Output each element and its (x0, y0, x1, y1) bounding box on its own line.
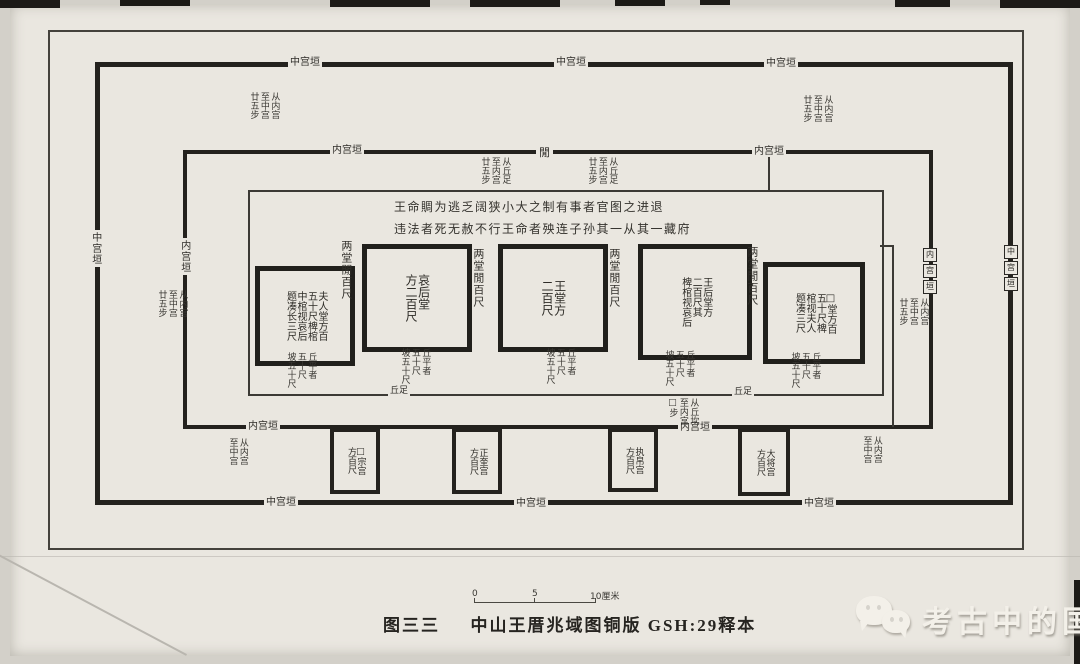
hall-inscription: 夫人堂方百五十尺椑棺中棺视哀后题凑长三尺 (284, 291, 326, 341)
hall-peitang: □堂方百五十尺椑棺视夫人题凑三尺 (763, 262, 865, 364)
palace-inscription: 大将宫方百尺 (755, 449, 774, 476)
inner-wall-label-vertical: 内宫垣 (178, 238, 189, 275)
annotation-between-walls: 从内宫至中宫廿五步 (155, 290, 244, 317)
annotation-mound-flat: 丘平者五十尺坡五十尺 (398, 348, 496, 384)
palace-zong: □宗宫方百尺 (330, 428, 380, 494)
middle-wall-label-vertical: 中宫垣 (89, 230, 100, 267)
edict-line-2: 违法者死无赦不行王命者殃连子孙其一从其一藏府 (394, 218, 691, 240)
scale-tick (595, 598, 596, 603)
annotation-corner: 从内宫至中宫 (226, 438, 286, 465)
wechat-icon (856, 596, 912, 642)
palace-dajiang: 大将宫方百尺 (738, 428, 790, 496)
palace-inscription: □宗宫方百尺 (346, 447, 365, 475)
inner-wall-top (183, 150, 933, 154)
annotation-below-mound: 从丘坎至内宫□步 (666, 398, 746, 425)
inner-wall-label: 内宫垣 (330, 145, 364, 156)
hall-inscription: 哀后堂方二百尺 (404, 274, 429, 322)
mound-step-segment (768, 152, 770, 190)
mound-foot-label: 丘足 (732, 387, 754, 398)
middle-wall-label: 中宫垣 (554, 57, 588, 68)
royal-edict: 王命賙为逃乏阔狭小大之制有事者官图之进退 违法者死无赦不行王命者殃连子孙其一从其… (394, 196, 691, 240)
inner-wall-boxed-label: 内 宫 垣 (923, 248, 937, 294)
annotation-between-walls: 从内宫至中宫廿五步 (896, 298, 985, 325)
annotation-inner-zone: 从丘足至内宫廿五步 (585, 157, 674, 184)
annotation-mound-flat: 丘平者五十尺坡五十尺 (662, 350, 760, 386)
scale-tick (474, 598, 475, 603)
middle-wall-boxed-label: 中 宫 垣 (1004, 245, 1018, 291)
annotation-between-walls: 从内宫至中宫廿五步 (247, 92, 336, 119)
annotation-mound-flat: 丘平者五十尺坡五十尺 (284, 352, 382, 388)
boxed-char: 内 (923, 248, 937, 262)
scan-smudge (895, 0, 950, 7)
annotation-inner-zone: 从丘足至内宫廿五步 (478, 157, 567, 184)
figure-caption: 图三三 中山王厝兆域图铜版 GSH:29释本 (383, 611, 756, 636)
annotation-corner: 从内宫至中宫 (860, 436, 920, 463)
scale-line (474, 602, 596, 603)
inner-wall-label: 内宫垣 (752, 146, 786, 157)
middle-wall-label: 中宫垣 (514, 498, 548, 509)
boxed-char: 宫 (1004, 261, 1018, 275)
hall-wang: 王堂方二百尺 (498, 244, 608, 352)
hall-inscription: 王后堂方二百尺其椑棺视哀后 (679, 277, 711, 327)
middle-wall-left (95, 62, 100, 505)
hall-gap-label: 两堂閒百尺 (608, 248, 620, 348)
scale-bar: 0 5 10厘米 (472, 589, 632, 607)
middle-wall-label: 中宫垣 (802, 498, 836, 509)
chat-bubble-small (882, 610, 910, 633)
mound-foot-label: 丘足 (388, 386, 410, 397)
hall-inscription: 王堂方二百尺 (540, 280, 565, 316)
middle-wall-label: 中宫垣 (288, 57, 322, 68)
scan-smudge (1000, 0, 1080, 8)
figure-number: 图三三 (383, 616, 440, 635)
scan-smudge (0, 0, 60, 8)
palace-zhibo: 执帛宫方百尺 (608, 428, 658, 492)
scan-smudge (330, 0, 430, 7)
scan-smudge (700, 0, 730, 5)
annotation-mound-flat: 丘平者五十尺坡五十尺 (788, 352, 886, 388)
boxed-char: 垣 (1004, 277, 1018, 291)
scan-smudge (470, 0, 560, 7)
boxed-char: 宫 (923, 264, 937, 278)
scanned-page: { "caption": { "fig_no": "图三三", "title":… (0, 0, 1080, 664)
middle-wall-label: 中宫垣 (264, 497, 298, 508)
annotation-mound-flat: 丘平者五十尺坡五十尺 (543, 348, 641, 384)
palace-inscription: 正奎宫方百尺 (468, 448, 487, 475)
hall-aihou: 哀后堂方二百尺 (362, 244, 472, 352)
mound-step-segment (892, 245, 894, 427)
page-edge-line (0, 556, 1080, 557)
scale-tick (534, 598, 535, 603)
palace-inscription: 执帛宫方百尺 (624, 447, 643, 474)
hall-wanghou: 王后堂方二百尺其椑棺视哀后 (638, 244, 752, 360)
middle-wall-bottom (95, 500, 1013, 505)
watermark: 考古中的国 (856, 596, 1080, 642)
boxed-char: 中 (1004, 245, 1018, 259)
inner-wall-label: 内宫垣 (246, 421, 280, 432)
hall-gap-label: 两堂閒百尺 (746, 246, 758, 346)
annotation-between-walls: 从内宫至中宫廿五步 (800, 95, 889, 122)
hall-gap-label: 两堂閒百尺 (340, 240, 352, 340)
palace-zhengkui: 正奎宫方百尺 (452, 428, 502, 494)
scan-smudge (615, 0, 665, 6)
watermark-text: 考古中的国 (922, 597, 1080, 641)
scan-smudge (120, 0, 190, 6)
hall-gap-label: 两堂閒百尺 (472, 248, 484, 348)
hall-inscription: □堂方百五十尺椑棺视夫人题凑三尺 (793, 293, 835, 334)
edict-line-1: 王命賙为逃乏阔狭小大之制有事者官图之进退 (394, 196, 691, 218)
middle-wall-label: 中宫垣 (764, 58, 798, 69)
inner-wall-bottom (183, 425, 933, 429)
figure-title: 中山王厝兆域图铜版 GSH:29释本 (471, 616, 757, 635)
boxed-char: 垣 (923, 280, 937, 294)
